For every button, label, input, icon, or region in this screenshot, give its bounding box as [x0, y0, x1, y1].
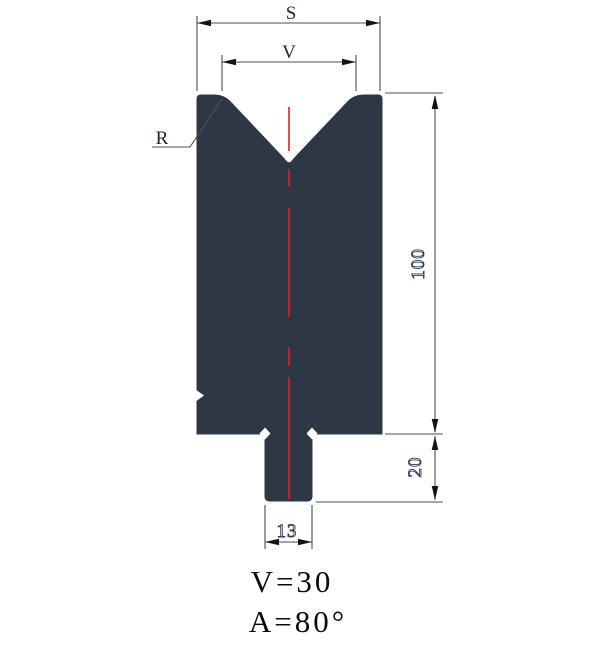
note-v-value: V=30 — [251, 564, 334, 599]
label-v: V — [282, 42, 296, 63]
arrow-20-top — [432, 436, 439, 450]
die-drawing-canvas: S V R 100 20 13 V=30 A=80° — [0, 0, 600, 650]
label-r: R — [156, 128, 169, 149]
note-angle-value: A=80° — [249, 604, 347, 639]
arrow-13-right — [298, 539, 312, 546]
arrow-s-right — [366, 20, 380, 27]
arrow-100-top — [432, 95, 439, 109]
arrow-100-bottom — [432, 419, 439, 433]
arrow-v-left — [222, 59, 236, 66]
label-100: 100 — [408, 248, 429, 280]
label-20: 20 — [405, 457, 426, 478]
arrow-20-bottom — [432, 486, 439, 500]
label-13: 13 — [277, 521, 298, 542]
label-s: S — [286, 3, 297, 24]
arrow-s-left — [197, 20, 211, 27]
die-drawing: S V R 100 20 13 V=30 A=80° — [0, 0, 600, 650]
arrow-v-right — [342, 59, 356, 66]
